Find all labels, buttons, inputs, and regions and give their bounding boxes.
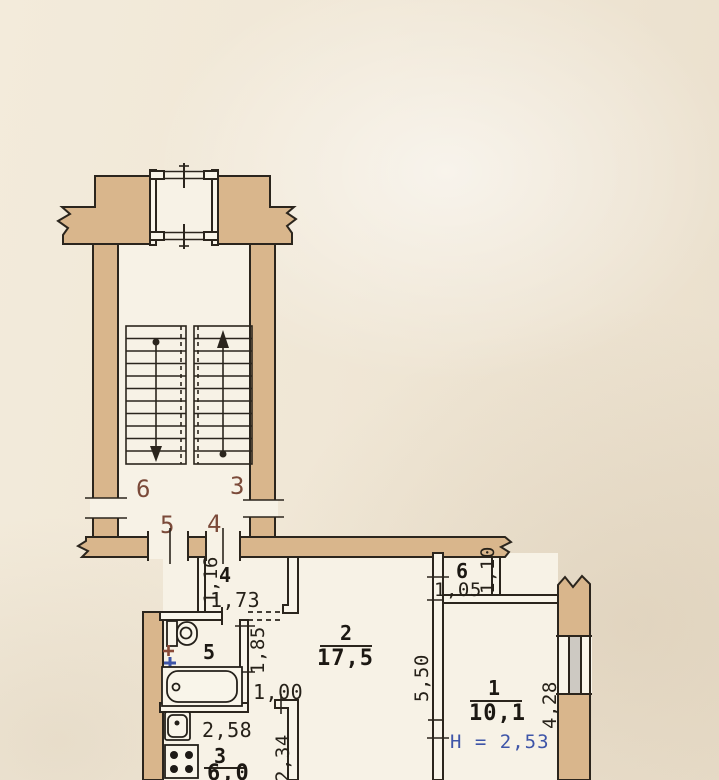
hall-length-dim: 1,73 bbox=[210, 588, 260, 612]
living-area: 17,5 bbox=[317, 646, 374, 671]
sink-icon bbox=[165, 712, 190, 740]
kitchen-depth-dim: 2,34 bbox=[272, 734, 294, 780]
apartment-number-5: 5 bbox=[160, 511, 174, 539]
apartment-number-4: 4 bbox=[207, 510, 221, 538]
stair-start-dot bbox=[220, 451, 227, 458]
bathroom-number: 5 bbox=[203, 640, 215, 664]
closet-width-dim: 1,05 bbox=[434, 579, 482, 601]
living-number: 2 bbox=[340, 621, 352, 645]
bathroom-opening-dim: 1,00 bbox=[253, 680, 303, 704]
floor-plan-photo: 6 3 5 4 bbox=[0, 0, 719, 780]
stairwell-left-wall bbox=[93, 244, 118, 539]
apartment-number-3: 3 bbox=[230, 472, 244, 500]
room1-wall-dim: 4,28 bbox=[539, 681, 561, 729]
apartment-door-right bbox=[243, 500, 284, 517]
facade-wall bbox=[78, 537, 511, 557]
closet-depth-dim: 1,10 bbox=[477, 546, 499, 594]
bathtub-icon bbox=[162, 667, 242, 706]
stairwell-right-wall bbox=[250, 244, 275, 537]
wall-break-icon bbox=[218, 176, 296, 244]
kitchen-area: 6,0 bbox=[207, 761, 250, 780]
living-length-dim: 5,50 bbox=[411, 654, 433, 702]
stove-icon bbox=[165, 745, 198, 778]
wall-break-icon bbox=[58, 176, 150, 244]
stair-start-dot bbox=[153, 339, 160, 346]
floor-plan-drawing: 6 3 5 4 bbox=[0, 0, 719, 780]
toilet-icon bbox=[167, 621, 197, 646]
apartment-door-left bbox=[85, 498, 127, 518]
exterior-wall-left bbox=[143, 612, 163, 780]
kitchen-width-dim: 2,58 bbox=[202, 718, 252, 742]
apartment-number-6: 6 bbox=[136, 475, 150, 503]
ceiling-height-note: H = 2,53 bbox=[450, 731, 550, 753]
bathroom-wall-dim: 1,85 bbox=[247, 626, 269, 674]
room1-number: 1 bbox=[488, 676, 500, 700]
room1-area: 10,1 bbox=[469, 701, 526, 726]
window bbox=[556, 636, 592, 694]
bathroom-top-wall bbox=[160, 612, 222, 620]
